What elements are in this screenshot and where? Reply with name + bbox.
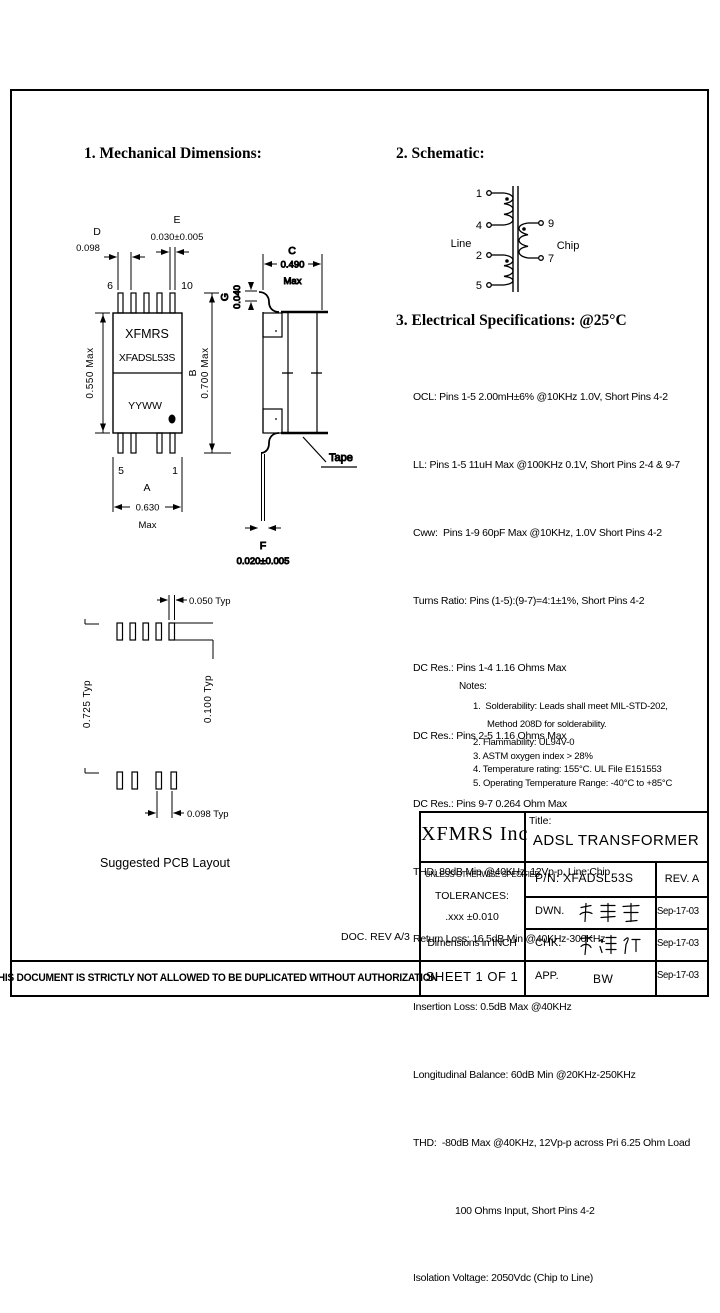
pcb-row-span-label: 0.725 Typ — [82, 680, 93, 728]
spec-line: THD: -80dB Max @40KHz, 12Vp-p across Pri… — [413, 1132, 690, 1155]
note-line: Method 208D for solderability. — [487, 719, 607, 730]
top-lead-profile — [259, 292, 279, 312]
spec-line: Isolation Voltage: 2050Vdc (Chip to Line… — [413, 1267, 690, 1290]
pin6-label: 6 — [107, 280, 113, 292]
dim-A-value: 0.630 — [136, 503, 160, 514]
package-side-view: C 0.490 Max G 0.040 F 0.020±0.005 Tape — [219, 245, 357, 567]
dim-B-letter: B — [187, 369, 199, 376]
pcb-pitch-label: 0.100 Typ — [203, 675, 214, 723]
dim-C-value: 0.490 — [281, 260, 305, 271]
dwn-label: DWN. — [535, 905, 564, 917]
tape-label: Tape — [329, 452, 353, 464]
dim-body-height: 0.550 Max — [85, 313, 110, 433]
package-marking: XFMRS XFADSL53S YYWW — [119, 327, 176, 412]
company-name: XFMRS Inc — [421, 823, 523, 846]
spec-line: 100 Ohms Input, Short Pins 4-2 — [413, 1200, 690, 1223]
spec-line: Cww: Pins 1-9 60pF Max @10KHz, 1.0V Shor… — [413, 522, 690, 545]
title-block-line — [419, 861, 707, 863]
tolerance-note-3: .xxx ±0.010 — [421, 911, 523, 923]
schematic-line-label: Line — [451, 238, 472, 250]
schematic-pin5-label: 5 — [476, 280, 482, 292]
polarity-dot-1 — [505, 197, 509, 201]
package-top-view — [113, 293, 182, 453]
note-line: 3. ASTM oxygen index > 28% — [473, 751, 593, 762]
schematic-pin7-label: 7 — [548, 253, 554, 265]
dim-E: E 0.030±0.005 — [151, 214, 204, 290]
pcb-layout: 0.050 Typ 0.100 Typ 0.725 Typ 0.098 Typ … — [82, 595, 231, 870]
title-block-line — [525, 928, 707, 930]
polarity-dot-2 — [505, 259, 509, 263]
chk-date: Sep-17-03 — [657, 938, 699, 949]
tolerance-note-1: UNLESS OTHERWISE SPECIFIED — [425, 869, 519, 879]
dim-height-value: 0.550 Max — [85, 347, 96, 398]
spec-line: Turns Ratio: Pins (1-5):(9-7)=4:1±1%, Sh… — [413, 590, 690, 613]
note-line: 1. Solderability: Leads shall meet MIL-S… — [473, 701, 668, 712]
datasheet-page: { "sections": { "mechanical_heading": "1… — [0, 0, 720, 1012]
schematic-chip-label: Chip — [557, 240, 580, 252]
app-signature: BW — [593, 972, 613, 986]
spec-line: DC Res.: Pins 1-4 1.16 Ohms Max — [413, 657, 690, 680]
notes-heading: Notes: — [459, 681, 487, 692]
schematic-pin2-label: 2 — [476, 250, 482, 262]
pcb-pad-width-label: 0.050 Typ — [189, 596, 231, 607]
schematic-pin4-label: 4 — [476, 220, 482, 232]
drawing-title: ADSL TRANSFORMER — [527, 832, 705, 849]
chk-signature — [576, 932, 646, 959]
spec-line: Longitudinal Balance: 60dB Min @20KHz-25… — [413, 1064, 690, 1087]
tolerance-note-2: TOLERANCES: — [421, 890, 523, 902]
transformer-schematic: 1 4 2 5 9 7 Line Chip — [451, 186, 580, 292]
dim-E-value: 0.030±0.005 — [151, 232, 204, 243]
spec-line: LL: Pins 1-5 11uH Max @100KHz 0.1V, Shor… — [413, 454, 690, 477]
title-block-line — [525, 896, 707, 898]
dim-B-value: 0.700 Max — [200, 347, 211, 398]
note-line: 5. Operating Temperature Range: -40°C to… — [473, 778, 672, 789]
tolerance-note-4: Dimensions in INCH — [421, 937, 523, 949]
dim-G-letter: G — [219, 293, 231, 301]
pcb-pad-pitch-label: 0.098 Typ — [187, 809, 229, 820]
disclaimer-text: THIS DOCUMENT IS STRICTLY NOT ALLOWED TO… — [0, 972, 437, 984]
polarity-dot-9 — [522, 227, 526, 231]
dim-C-max: Max — [284, 276, 302, 287]
pin10-label: 10 — [181, 280, 193, 292]
title-block-border — [419, 811, 707, 813]
app-label: APP. — [535, 970, 559, 982]
dim-E-letter: E — [173, 214, 180, 226]
spec-line: OCL: Pins 1-5 2.00mH±6% @10KHz 1.0V, Sho… — [413, 386, 690, 409]
pin1-label: 1 — [172, 465, 178, 477]
app-date: Sep-17-03 — [657, 970, 699, 981]
marking-datecode: YYWW — [128, 400, 162, 412]
revision: REV. A — [657, 873, 707, 885]
bottom-lead-profile — [262, 433, 279, 453]
dim-F-value: 0.020±0.005 — [237, 556, 290, 567]
marking-part-number: XFADSL53S — [119, 352, 176, 364]
schematic-pin9-label: 9 — [548, 218, 554, 230]
pin5-label: 5 — [118, 465, 124, 477]
dim-A-letter: A — [143, 482, 150, 494]
primary-winding-1-4 — [504, 193, 513, 225]
dwn-signature — [576, 900, 646, 927]
doc-rev-label: DOC. REV A/3 — [341, 931, 410, 943]
dim-C-letter: C — [288, 245, 296, 257]
dim-B: B 0.700 Max — [187, 293, 231, 453]
dim-D-letter: D — [93, 226, 101, 238]
dim-A-max: Max — [139, 520, 157, 531]
spec-line: Insertion Loss: 0.5dB Max @40KHz — [413, 996, 690, 1019]
note-line: 4. Temperature rating: 155°C. UL File E1… — [473, 764, 662, 775]
disclaimer-cell: THIS DOCUMENT IS STRICTLY NOT ALLOWED TO… — [12, 962, 417, 993]
pin-number-labels: 6 10 5 1 — [107, 280, 193, 477]
schematic-pin1-label: 1 — [476, 188, 482, 200]
title-label: Title: — [529, 815, 551, 827]
chk-label: CHK. — [535, 937, 561, 949]
pcb-layout-caption: Suggested PCB Layout — [100, 856, 230, 870]
pin1-dot-marker — [169, 415, 176, 424]
dim-F-letter: F — [260, 540, 266, 552]
primary-winding-2-5 — [504, 255, 513, 285]
part-number: P/N: XFADSL53S — [535, 871, 633, 885]
marking-brand: XFMRS — [125, 327, 169, 341]
dim-G-value: 0.040 — [232, 285, 243, 309]
dwn-date: Sep-17-03 — [657, 906, 699, 917]
dim-D-value: 0.098 — [76, 243, 100, 254]
note-line: 2. Flammability: UL94V-0 — [473, 737, 574, 748]
